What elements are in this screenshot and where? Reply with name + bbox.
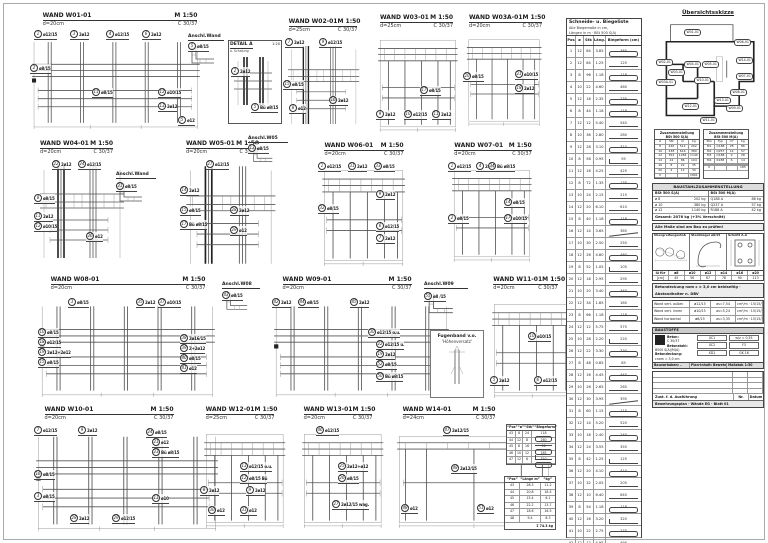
wall-panel-w01: WAND W01-01M 1:50 d=20cmC 30/37 1ø12/153… xyxy=(30,12,210,130)
cell-length: 4.45 xyxy=(594,370,606,381)
position-bubble: 27 xyxy=(206,160,214,168)
cell-length: 2.95 xyxy=(594,274,606,285)
cell-count: 96 xyxy=(584,70,594,81)
rebar-callout: 192ø12 xyxy=(376,350,395,360)
lap-value: 45 xyxy=(674,276,678,280)
rev-cell xyxy=(733,389,748,394)
position-bubble: 30 xyxy=(368,328,376,336)
col-header: kg xyxy=(540,477,555,482)
rebar-callout: 472ø12/15 xyxy=(443,426,469,436)
panel-concrete: C 30/37 xyxy=(523,23,543,30)
cell-count: 24 xyxy=(523,431,532,437)
cell-shape: 118 xyxy=(606,502,641,513)
revision-nr-header: Nr. xyxy=(733,394,748,400)
bend-shape xyxy=(609,75,638,82)
connection-detail-w04: Anschl.Wand 21ø8/15 xyxy=(116,172,156,205)
callout-label: ø10/15 xyxy=(43,224,57,229)
position-bubble: 4 xyxy=(476,162,484,170)
bend-shape xyxy=(609,87,638,91)
position-bubble: 10 xyxy=(38,328,46,336)
callout-label: 2ø16/15 xyxy=(189,336,206,341)
cell-val: 380 kg xyxy=(694,203,706,208)
rebar-callout: 6ø12/15 xyxy=(376,222,399,232)
bend-shape xyxy=(609,327,638,331)
rebar-callout: 222ø12 xyxy=(52,160,71,170)
col-header-pos: Pos xyxy=(567,36,576,45)
panel-thickness: d=20cm xyxy=(304,415,325,422)
panel-thickness: d=20cm xyxy=(454,151,475,158)
rev-cell xyxy=(653,383,733,388)
cell-length: 0.85 xyxy=(594,358,606,369)
callout-label: ø12 xyxy=(249,508,257,513)
wall-tag: W06-01 xyxy=(734,39,751,46)
lap-length-table: lü für[cm]ø845ø1056ø1267ø1478ø1690ø20113 xyxy=(652,271,764,281)
position-bubble: 23 xyxy=(152,448,160,456)
cell-dia: 10 xyxy=(576,382,584,393)
wall-panel-w14: WAND W14-01M 1:50 d=24cmC 30/37 472ø12/1… xyxy=(395,406,503,528)
cell: 46 xyxy=(505,503,520,509)
bar-list-row: 18 12 26 4.80 480 xyxy=(567,250,641,262)
callout-label: ø12/15 o.u. xyxy=(377,330,400,335)
cell-dia: 8 xyxy=(576,358,584,369)
cell: 18.5 xyxy=(541,490,555,496)
bend-shape xyxy=(609,423,638,427)
lap-value: 90 xyxy=(738,276,742,280)
bar-list-row: 33 10 18 2.40 240 xyxy=(567,430,641,442)
bend-shape xyxy=(609,159,638,164)
cell-dia: 12 xyxy=(576,394,584,405)
callout-label: ø8/15 xyxy=(472,74,484,79)
position-bubble: 41 xyxy=(180,364,188,372)
callout-label: ø8/15 xyxy=(383,164,395,169)
bar-list-row: 9 12 28 3.10 310 xyxy=(567,142,641,154)
cell-pos: 20 xyxy=(567,274,576,285)
callout-label: 2ø12 xyxy=(357,164,367,169)
cell-length: 1.25 xyxy=(594,58,606,69)
mix-spec: F3 xyxy=(729,342,759,348)
rebar-callout: 15ø8/15 xyxy=(283,80,304,90)
position-bubble: 14 xyxy=(180,186,188,194)
bar-list-row: 30 12 30 3.95 395 xyxy=(567,394,641,406)
lap-value: 113 xyxy=(753,276,759,280)
cell: 185 xyxy=(738,166,748,170)
bend-shape xyxy=(609,315,638,322)
cell: 47 xyxy=(505,509,520,515)
detail-title: Anschl.Wand xyxy=(188,34,224,41)
cell-pos: 44 xyxy=(507,438,516,444)
cell-pos: 24 xyxy=(567,322,576,333)
cell-shape: 520 xyxy=(606,418,641,429)
bar-list-row: 19 8 52 1.05 105 xyxy=(567,262,641,274)
position-bubble: 26 xyxy=(86,232,94,240)
cell-length: 1.18 xyxy=(594,310,606,321)
rebar-callout: 10ø12/15 xyxy=(404,110,427,120)
position-bubble: 39 xyxy=(180,344,188,352)
wall-tag: W11-01 xyxy=(700,117,717,124)
cell-count: 12 xyxy=(523,451,532,457)
cell-pos: 2 xyxy=(567,58,576,69)
panel-scale: M 1:50 xyxy=(430,14,453,22)
wall-tag: W02-01 xyxy=(656,59,673,66)
cell-pos: 18 xyxy=(567,250,576,261)
table-subtitle: BSt 500 S(A) xyxy=(666,135,689,139)
revision-status: Zust. f. d. Ausführung xyxy=(653,394,733,400)
callout-label: ø8/15 xyxy=(47,330,59,335)
cell-pos: 35 xyxy=(567,454,576,465)
cell: 16.5 xyxy=(541,509,555,515)
panel-scale: M 1:50 xyxy=(523,14,546,22)
callout-label: ø12 xyxy=(189,366,197,371)
cell-shape: 115 xyxy=(606,406,641,417)
callout-label: ø8/15 Bü xyxy=(249,476,267,481)
wall-tag-label: W12-01 xyxy=(685,104,697,108)
bar-list-row: 4 10 22 4.60 460 xyxy=(567,82,641,94)
bend-shape xyxy=(609,387,638,391)
bend-shape xyxy=(609,519,638,524)
position-bubble: 50 xyxy=(376,372,384,380)
cell-dia: 12 xyxy=(576,250,584,261)
cell xyxy=(666,174,677,178)
cell-pos: 5 xyxy=(567,94,576,105)
col-header-dia: ø xyxy=(576,36,584,45)
callout-label: ø12/15 xyxy=(328,40,342,45)
cell-shape: 395 xyxy=(606,394,641,405)
cell-count: 42 xyxy=(584,454,594,465)
callout-label: ø8/15 xyxy=(231,293,243,298)
rebar-callout: 24ø12/15 xyxy=(78,160,101,170)
panel-thickness: d=25cm xyxy=(206,415,227,422)
callout-label: ø12/15 xyxy=(43,428,57,433)
cell-count: 16 xyxy=(523,444,532,450)
wall-panel-w03a: WAND W03A-01M 1:50 d=20cmC 30/37 20ø8/15… xyxy=(463,14,548,126)
panel-concrete: C 30/37 xyxy=(338,27,358,34)
callout-label: ø12/15 xyxy=(325,428,339,433)
cell: Σ xyxy=(704,166,715,170)
position-bubble: 13 xyxy=(158,102,166,110)
panel-title: WAND W07-01 xyxy=(454,142,503,150)
mini-summary-rows: 4328.311.2 4420.818.5 4515.46.1 4622.213… xyxy=(505,483,555,523)
position-bubble: 11 xyxy=(92,88,100,96)
rebar-callout: 1ø12/15 xyxy=(448,162,471,172)
cell-shape: 410 xyxy=(606,466,641,477)
bar-list-row: 34 12 24 3.55 355 xyxy=(567,442,641,454)
panel-thickness: d=24cm xyxy=(403,415,424,422)
position-bubble: 15 xyxy=(38,358,46,366)
wall-tag-label: W13-01 xyxy=(717,98,729,102)
callout-label: ø12/15 xyxy=(327,164,341,169)
cell: 1891 xyxy=(689,174,699,178)
callout-label: ø8/15 xyxy=(197,44,209,49)
plan-info: Bauvorhaben: – xyxy=(653,363,690,368)
rebar-callout: 10ø8/15 xyxy=(38,328,59,338)
panel-thickness: d=20cm xyxy=(186,149,207,156)
detail-scale: 1:20 xyxy=(272,42,280,49)
cell-shape: 240 xyxy=(606,430,641,441)
callout-label: ø10/15 xyxy=(513,216,527,221)
cell-length: 1.05 xyxy=(594,262,606,273)
cell-shape: 495 xyxy=(606,538,641,543)
cell-dia: 12 xyxy=(516,457,523,463)
cell-length: 1.85 xyxy=(594,298,606,309)
cell xyxy=(715,166,726,170)
rebar-callout: 10ø10/15 xyxy=(528,332,551,342)
cell-length: 3.40 xyxy=(594,286,606,297)
table-row: 47126310 xyxy=(507,457,555,464)
rebar-callout: 352ø12 xyxy=(136,298,155,308)
cell-pos: 4 xyxy=(567,82,576,93)
cell-pos: 23 xyxy=(567,310,576,321)
panel-title: WAND W14-01 xyxy=(403,406,452,414)
connection-detail-w01: Anschl.Wand 5ø8/15 xyxy=(188,34,224,67)
cell: 12 xyxy=(678,169,689,173)
cell-shape: 205 xyxy=(606,478,641,489)
panel-concrete: C 30/37 xyxy=(94,149,114,156)
bar-list-row: 21 10 20 3.40 340 xyxy=(567,286,641,298)
position-bubble: 43 xyxy=(222,291,230,299)
rebar-callout: 92ø12 xyxy=(246,486,265,496)
bend-shape xyxy=(609,303,638,307)
cell-dia: 8 xyxy=(576,502,584,513)
position-bubble: 48 xyxy=(451,464,459,472)
callout-label: 2ø12 xyxy=(385,236,395,241)
callout-label: 2ø12 xyxy=(255,488,265,493)
rebar-callout: 252ø12+ø12 xyxy=(338,462,368,472)
cell-pos: 10 xyxy=(567,154,576,165)
cell-dia: 12 xyxy=(576,166,584,177)
reinforcement-spec-table: Wand vert. außenø12/15as=7,54cm²/m · 15/… xyxy=(652,300,764,324)
spec-bars: ø12/15 xyxy=(690,301,711,307)
callout-label: ø8 /15 xyxy=(433,294,446,299)
position-bubble: 28 xyxy=(70,514,78,522)
rebar-callout: 21ø12 xyxy=(152,438,169,448)
callout-label: 2ø12 xyxy=(294,40,304,45)
cell-dia: 10 xyxy=(576,478,584,489)
cell-dia: 8 xyxy=(576,70,584,81)
bar-list-row: 38 12 10 6.40 640 xyxy=(567,490,641,502)
wall-tag: W12-01 xyxy=(682,103,699,110)
callout-label: ø10/15 xyxy=(524,72,538,77)
bar-list-row: 22 12 34 1.85 185 xyxy=(567,298,641,310)
position-bubble: 21 xyxy=(116,182,124,190)
position-bubble: 18 xyxy=(38,338,46,346)
rebar-callout: 17Bü ø8/15 xyxy=(180,220,207,230)
callout-label: 2ø12 xyxy=(385,352,395,357)
position-bubble: 24 xyxy=(78,160,86,168)
panel-scale: M 1:50 xyxy=(151,406,174,414)
cell-length: 1.25 xyxy=(594,454,606,465)
position-bubble: 4 xyxy=(106,30,114,38)
cell-dia: 12 xyxy=(576,370,584,381)
summary-rows: øStkmkg844651220210238616380123521284114… xyxy=(655,140,699,178)
callout-label: Bü ø8/15 xyxy=(189,222,207,227)
revision-footer: Zust. f. d. Ausführung Nr. Datum xyxy=(653,394,763,401)
bar-list-row: 13 10 24 2.15 215 xyxy=(567,190,641,202)
cell-dia: 12 xyxy=(576,298,584,309)
table-row: 44128260 xyxy=(507,438,555,445)
callout-label: ø12/15 xyxy=(385,224,399,229)
cell: 11.2 xyxy=(541,483,555,489)
cell-count: 24 xyxy=(584,442,594,453)
wall-tag-label: W01-01 xyxy=(687,30,699,34)
cell-count: 54 xyxy=(584,502,594,513)
rebar-callout: 29ø12 xyxy=(230,226,247,236)
cell-shape: 260 xyxy=(532,438,555,444)
callout-label: 2ø12 xyxy=(338,98,348,103)
callout-label: ø10/15 xyxy=(167,90,181,95)
wall-tag: W01-01 xyxy=(684,29,701,36)
lap-value: 56 xyxy=(690,276,694,280)
mix-boxes: w/z = 0,55 F3 GK 16 xyxy=(729,335,759,361)
cell-dia: 12 xyxy=(576,322,584,333)
panel-title: WAND W02-01 xyxy=(289,18,338,26)
cell-count: 30 xyxy=(584,394,594,405)
cell-length: 5.20 xyxy=(594,418,606,429)
rebar-callout: 44ø8/15 xyxy=(298,298,319,308)
plan-info: Plan-Inhalt: Bewehrung Wände xyxy=(690,363,727,368)
connection-detail-w05: Anschl.W05 13ø8/15 xyxy=(248,136,288,165)
bar-list-row: 3 8 96 1.18 118 xyxy=(567,70,641,82)
cell-shape: 445 xyxy=(606,370,641,381)
position-bubble: 35 xyxy=(136,298,144,306)
lap-value: 67 xyxy=(706,276,710,280)
cell-count: 18 xyxy=(584,430,594,441)
cell-dia: 12 xyxy=(576,418,584,429)
rebar-callout: 12ø10/15 xyxy=(158,88,181,98)
cell-length: 4.10 xyxy=(594,466,606,477)
bar-list-row: 39 8 54 1.18 118 xyxy=(567,502,641,514)
wall-tag-label: W11-01 xyxy=(703,118,715,122)
callout-label: Bü ø8/15 xyxy=(260,105,278,110)
callout-label: ø12/15 u. xyxy=(385,342,404,347)
cell-pos: 27 xyxy=(567,358,576,369)
position-bubble: 3 xyxy=(70,30,78,38)
wall-tag: W07-01 xyxy=(736,73,753,80)
rebar-callout: 112ø12 xyxy=(34,212,53,222)
wall-panel-w06: WAND W06-01M 1:50 d=20cmC 30/37 1ø12/153… xyxy=(318,142,410,266)
wall-tag-label: W09-01 xyxy=(729,106,741,110)
rebar-callout: 37ø10/15 xyxy=(158,298,181,308)
wall-panel-w04: WAND W04-01M 1:50 d=20cmC 30/37 222ø1224… xyxy=(34,140,119,262)
bar-list-row: 31 8 60 1.15 115 xyxy=(567,406,641,418)
cell-pos: 32 xyxy=(567,418,576,429)
cell-length: 0.95 xyxy=(594,154,606,165)
cell-pos: 16 xyxy=(567,226,576,237)
rebar-callout: 62ø12 xyxy=(142,30,161,40)
bend-shape xyxy=(609,339,638,344)
position-bubble: 13 xyxy=(240,462,248,470)
callout-label: ø8/15 xyxy=(125,184,137,189)
callout-label: ø8/15 xyxy=(307,300,319,305)
summary-table-bst-s: ZusammenstellungBSt 500 S(A) øStkmkg8446… xyxy=(654,129,700,179)
position-bubble: 30 xyxy=(208,506,216,514)
bar-list-row: 7 12 12 5.40 540 xyxy=(567,118,641,130)
lap-length-cell: ø1056 xyxy=(685,271,701,280)
spec-area: as=5,24 xyxy=(711,308,736,314)
cell-shape: 355 xyxy=(606,442,641,453)
panel-title: WAND W05-01 xyxy=(186,140,235,148)
cell-val: 1140 kg xyxy=(692,208,706,213)
cell-length: 3.85 xyxy=(594,46,606,57)
callout-label: ø12 xyxy=(217,508,225,513)
callout-label: ø12/15 xyxy=(43,32,57,37)
panel-thickness: d=20cm xyxy=(493,285,514,292)
bar-list-row: 26 12 22 3.30 330 xyxy=(567,346,641,358)
position-bubble: 5 xyxy=(188,42,196,50)
cell: 30 xyxy=(689,169,699,173)
wall-panel-w13: WAND W13-01M 1:50 d=20cmC 30/37 46ø12/15… xyxy=(298,406,378,528)
bend-shape xyxy=(609,111,638,118)
lap-length-cell: ø845 xyxy=(669,271,685,280)
cell-length: 2.35 xyxy=(594,94,606,105)
cell-count: 22 xyxy=(584,82,594,93)
bend-shape xyxy=(609,483,638,487)
cell-val: 202 kg xyxy=(694,197,706,202)
position-bubble: 12 xyxy=(158,88,166,96)
cell-pos: 30 xyxy=(567,394,576,405)
wall-tag: W10-01 xyxy=(694,77,711,84)
panel-thickness: d=20cm xyxy=(469,23,490,30)
position-bubble: 49 xyxy=(401,504,409,512)
cell-shape: 220 xyxy=(606,334,641,345)
wall-tag-label: W03A-01 xyxy=(659,80,674,84)
position-bubble: 31 xyxy=(348,162,356,170)
table-row: ø 121140 kg xyxy=(653,208,708,214)
col-header: Pos xyxy=(507,425,518,430)
rebar-callout: 52ø8/15 xyxy=(376,360,397,370)
bar-list-row: 41 10 22 2.75 275 xyxy=(567,526,641,538)
cell-dia: 8 xyxy=(516,444,523,450)
bend-shape xyxy=(609,99,638,106)
detail-title: DETAIL A xyxy=(230,42,253,49)
plan-info-bar: Bauvorhaben: – Plan-Inhalt: Bewehrung Wä… xyxy=(653,362,763,368)
cell: 9.4 xyxy=(520,516,541,522)
cell: 48 xyxy=(505,516,520,522)
cell: 6.1 xyxy=(541,496,555,502)
rebar-callout: 40ø8/15 xyxy=(180,354,201,364)
cell-length: 2.40 xyxy=(594,430,606,441)
bend-shape xyxy=(609,51,638,58)
cell-pos: 29 xyxy=(567,382,576,393)
callout-label: ø12/15 xyxy=(87,162,101,167)
cell xyxy=(727,166,738,170)
bend-shape xyxy=(609,507,638,514)
position-bubble: 7 xyxy=(285,38,293,46)
cell-val: 86 kg xyxy=(751,197,761,202)
cell-shape: 460 xyxy=(606,82,641,93)
callout-label: ø8/15 xyxy=(101,90,113,95)
site-check-note: Alle Maße sind am Bau zu prüfen! xyxy=(652,223,764,232)
col-header: Länge m xyxy=(520,477,541,482)
cell-count: 20 xyxy=(584,466,594,477)
position-bubble: 11 xyxy=(432,110,440,118)
cell-length: 3.30 xyxy=(594,346,606,357)
mix-spec: w/z = 0,55 xyxy=(729,335,759,341)
callout-label: ø8/15 xyxy=(189,208,201,213)
position-bubble: 15 xyxy=(180,206,188,214)
cell-length: 4.80 xyxy=(594,250,606,261)
spec-bars: ø8/15 xyxy=(690,316,711,322)
rebar-callout: 55ø8 /15 xyxy=(424,292,446,302)
callout-label: ø8/15 xyxy=(39,66,51,71)
position-bubble: 27 xyxy=(332,500,340,508)
cell-pos: 6 xyxy=(567,106,576,117)
wall-tag-label: W05-01 xyxy=(705,62,717,66)
bar-list-row: 6 8 44 1.18 118 xyxy=(567,106,641,118)
bar-list-row: 20 12 18 2.95 295 xyxy=(567,274,641,286)
cell-dia: 10 xyxy=(516,451,523,457)
panel-thickness: d=20cm xyxy=(45,415,66,422)
rebar-callout: 11ø8/15 xyxy=(92,88,113,98)
